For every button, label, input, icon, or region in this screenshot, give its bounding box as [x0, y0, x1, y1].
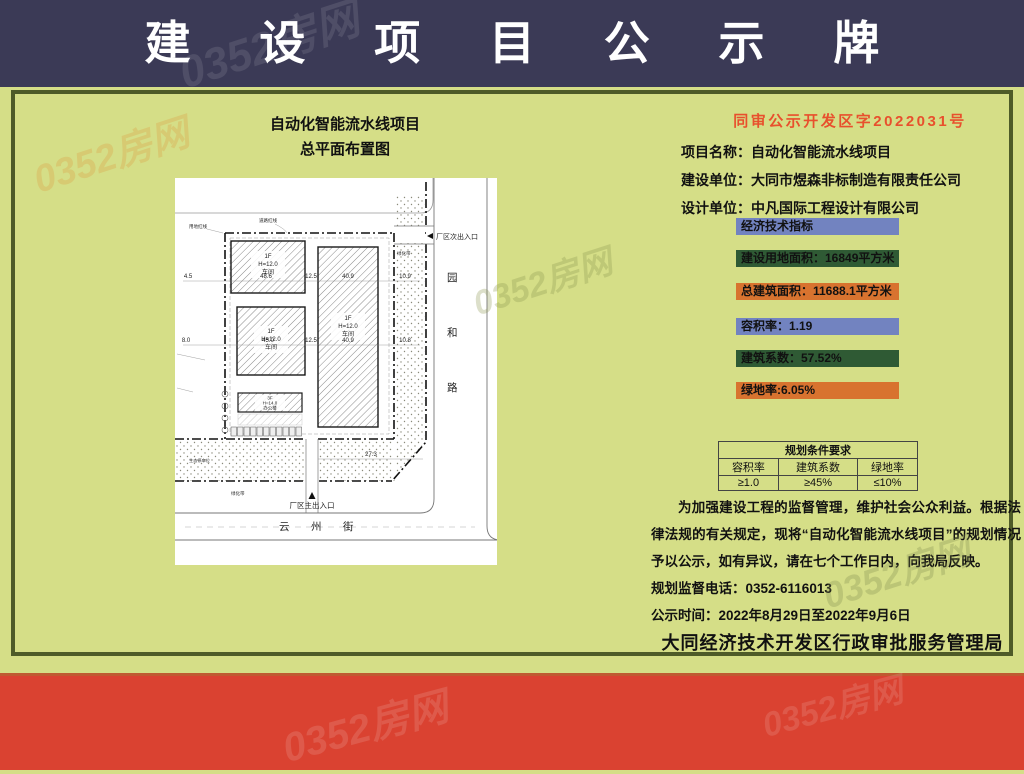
- notice-period-line: 公示时间：2022年8月29日至2022年9月6日: [651, 602, 1021, 629]
- document-number: 同审公示开发区字2022031号: [690, 110, 1010, 131]
- indicator-bar-floor-area: 总建筑面积：11688.1平方米: [736, 283, 899, 300]
- side-entrance-label: 厂区次出入口: [436, 232, 478, 241]
- svg-text:车间: 车间: [342, 330, 354, 338]
- indicator-bar-building-coverage: 建筑系数：57.52%: [736, 350, 899, 367]
- info-value: 大同市煜森非标制造有限责任公司: [751, 172, 961, 188]
- svg-text:街: 街: [343, 520, 354, 533]
- svg-text:1F: 1F: [267, 329, 274, 335]
- svg-text:48.6: 48.6: [260, 274, 272, 280]
- building-office: 3F H=14.0 办公楼: [238, 393, 302, 412]
- info-label: 项目名称：: [681, 144, 751, 160]
- header-band: 建 设 项 目 公 示 牌: [0, 0, 1024, 87]
- building-workshop-1: 1F H=12.0 车间: [231, 241, 305, 293]
- info-value: 自动化智能流水线项目: [751, 144, 891, 160]
- svg-text:40.9: 40.9: [342, 338, 354, 344]
- svg-text:40.9: 40.9: [342, 274, 354, 280]
- issuing-authority: 大同经济技术开发区行政审批服务管理局: [650, 629, 1015, 655]
- side-entrance-driveway: [395, 227, 425, 243]
- svg-text:1F: 1F: [344, 316, 351, 322]
- svg-text:H=12.0: H=12.0: [258, 262, 278, 268]
- planning-table-header: 绿地率: [858, 459, 918, 476]
- parking-row: [231, 427, 302, 436]
- indicator-bar-plot-ratio: 容积率：1.19: [736, 318, 899, 335]
- svg-text:路: 路: [447, 381, 458, 394]
- svg-text:4.5: 4.5: [184, 274, 193, 280]
- public-notice-text: 为加强建设工程的监督管理，维护社会公众利益。根据法律法规的有关规定，现将“自动化…: [651, 494, 1021, 629]
- planning-table-title: 规划条件要求: [719, 442, 918, 459]
- svg-text:办公楼: 办公楼: [263, 405, 277, 412]
- supervision-phone-line: 规划监督电话：0352-6116013: [651, 575, 1021, 602]
- site-plan-title-line2: 总平面布置图: [185, 137, 505, 162]
- site-plan-drawing: 1F H=12.0 车间 1F H=12.0 车间 1F H=12.0 车间 3…: [175, 178, 497, 565]
- svg-text:12.5: 12.5: [305, 274, 317, 280]
- land-red-line-label: 用地红线: [189, 223, 207, 230]
- site-plan-title: 自动化智能流水线项目 总平面布置图: [185, 112, 505, 162]
- planning-table-value: ≥1.0: [719, 476, 779, 491]
- svg-text:H=12.0: H=12.0: [338, 324, 358, 330]
- planning-conditions-table: 规划条件要求 容积率 建筑系数 绿地率 ≥1.0 ≥45% ≤10%: [718, 441, 918, 491]
- svg-text:园: 园: [447, 272, 458, 284]
- svg-text:27.3: 27.3: [365, 452, 377, 458]
- main-entrance-label: 厂区主出入口: [290, 500, 335, 510]
- page-title: 建 设 项 目 公 示 牌: [0, 0, 1024, 87]
- bottom-stripe: [0, 673, 1024, 770]
- info-row-project-name: 项目名称：自动化智能流水线项目: [681, 138, 1011, 166]
- svg-text:1F: 1F: [264, 254, 271, 260]
- planning-table-header: 建筑系数: [778, 459, 857, 476]
- eco-parking-label: 生态停车位: [189, 457, 210, 464]
- svg-text:45.0: 45.0: [262, 338, 274, 344]
- svg-text:8.0: 8.0: [182, 338, 191, 344]
- svg-text:12.5: 12.5: [305, 338, 317, 344]
- svg-text:车间: 车间: [265, 343, 277, 351]
- ancillary-strip: [238, 414, 302, 425]
- green-belt-label-bottom: 绿化带: [231, 490, 245, 497]
- indicator-bar-land-area: 建设用地面积：16849平方米: [736, 250, 899, 267]
- info-value: 中凡国际工程设计有限公司: [751, 200, 919, 216]
- project-info: 项目名称：自动化智能流水线项目 建设单位：大同市煜森非标制造有限责任公司 设计单…: [681, 138, 1011, 222]
- planning-table-value: ≤10%: [858, 476, 918, 491]
- road-red-line-label: 道路红线: [259, 217, 277, 224]
- info-label: 设计单位：: [681, 200, 751, 216]
- notice-paragraph: 为加强建设工程的监督管理，维护社会公众利益。根据法律法规的有关规定，现将“自动化…: [651, 494, 1021, 575]
- info-label: 建设单位：: [681, 172, 751, 188]
- svg-text:10.9: 10.9: [399, 274, 411, 280]
- svg-text:州: 州: [311, 521, 322, 533]
- green-belt-label-right: 绿化带: [397, 250, 411, 257]
- indicator-bar-green-ratio: 绿地率:6.05%: [736, 382, 899, 399]
- info-row-builder: 建设单位：大同市煜森非标制造有限责任公司: [681, 166, 1011, 194]
- indicator-bar-title: 经济技术指标: [736, 218, 899, 235]
- svg-text:云: 云: [279, 521, 290, 533]
- site-plan-title-line1: 自动化智能流水线项目: [185, 112, 505, 137]
- planning-table-header: 容积率: [719, 459, 779, 476]
- svg-text:和: 和: [447, 327, 458, 339]
- svg-text:10.8: 10.8: [399, 338, 411, 344]
- planning-table-value: ≥45%: [778, 476, 857, 491]
